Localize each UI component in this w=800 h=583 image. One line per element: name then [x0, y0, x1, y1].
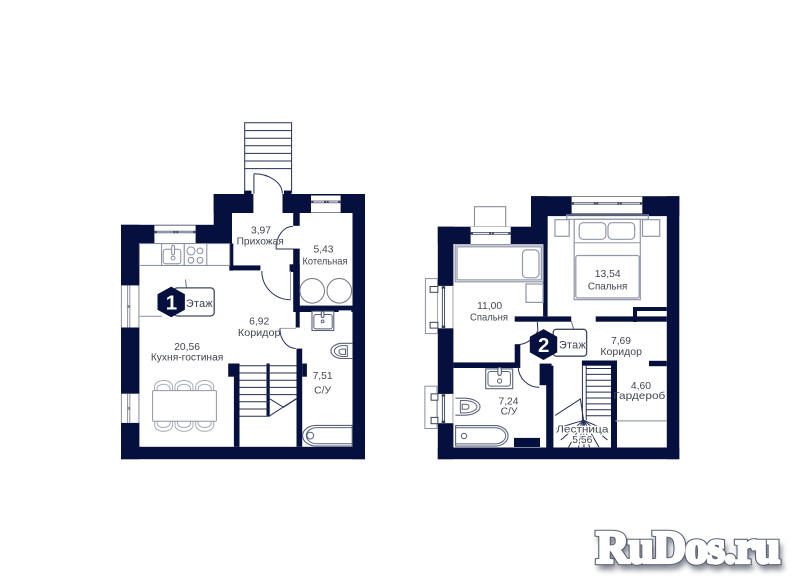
svg-text:Лестница: Лестница: [556, 425, 609, 436]
svg-text:7,69: 7,69: [611, 336, 631, 347]
svg-text:Спальня: Спальня: [588, 281, 628, 292]
svg-text:3,97: 3,97: [251, 226, 271, 237]
svg-text:5,43: 5,43: [313, 245, 333, 256]
svg-text:С/У: С/У: [501, 407, 518, 418]
svg-text:Кухня-гостиная: Кухня-гостиная: [151, 353, 224, 364]
svg-text:11,00: 11,00: [477, 301, 502, 312]
svg-text:Прихожая: Прихожая: [237, 236, 284, 247]
svg-text:Этаж: Этаж: [186, 298, 213, 310]
svg-text:С/У: С/У: [314, 385, 331, 396]
svg-text:5,56: 5,56: [572, 435, 592, 446]
svg-text:7,51: 7,51: [313, 371, 333, 382]
svg-text:Котельная: Котельная: [303, 257, 348, 268]
svg-text:Коридор: Коридор: [600, 347, 642, 358]
svg-text:RuDos.ru: RuDos.ru: [597, 523, 780, 573]
svg-text:Коридор: Коридор: [238, 328, 281, 339]
svg-text:1: 1: [166, 291, 177, 314]
svg-text:13,54: 13,54: [595, 269, 621, 280]
svg-text:Гардероб: Гардероб: [613, 390, 665, 402]
svg-text:Спальня: Спальня: [470, 312, 508, 323]
svg-text:Этаж: Этаж: [559, 340, 586, 352]
svg-text:6,92: 6,92: [249, 317, 269, 328]
svg-text:2: 2: [538, 334, 549, 357]
